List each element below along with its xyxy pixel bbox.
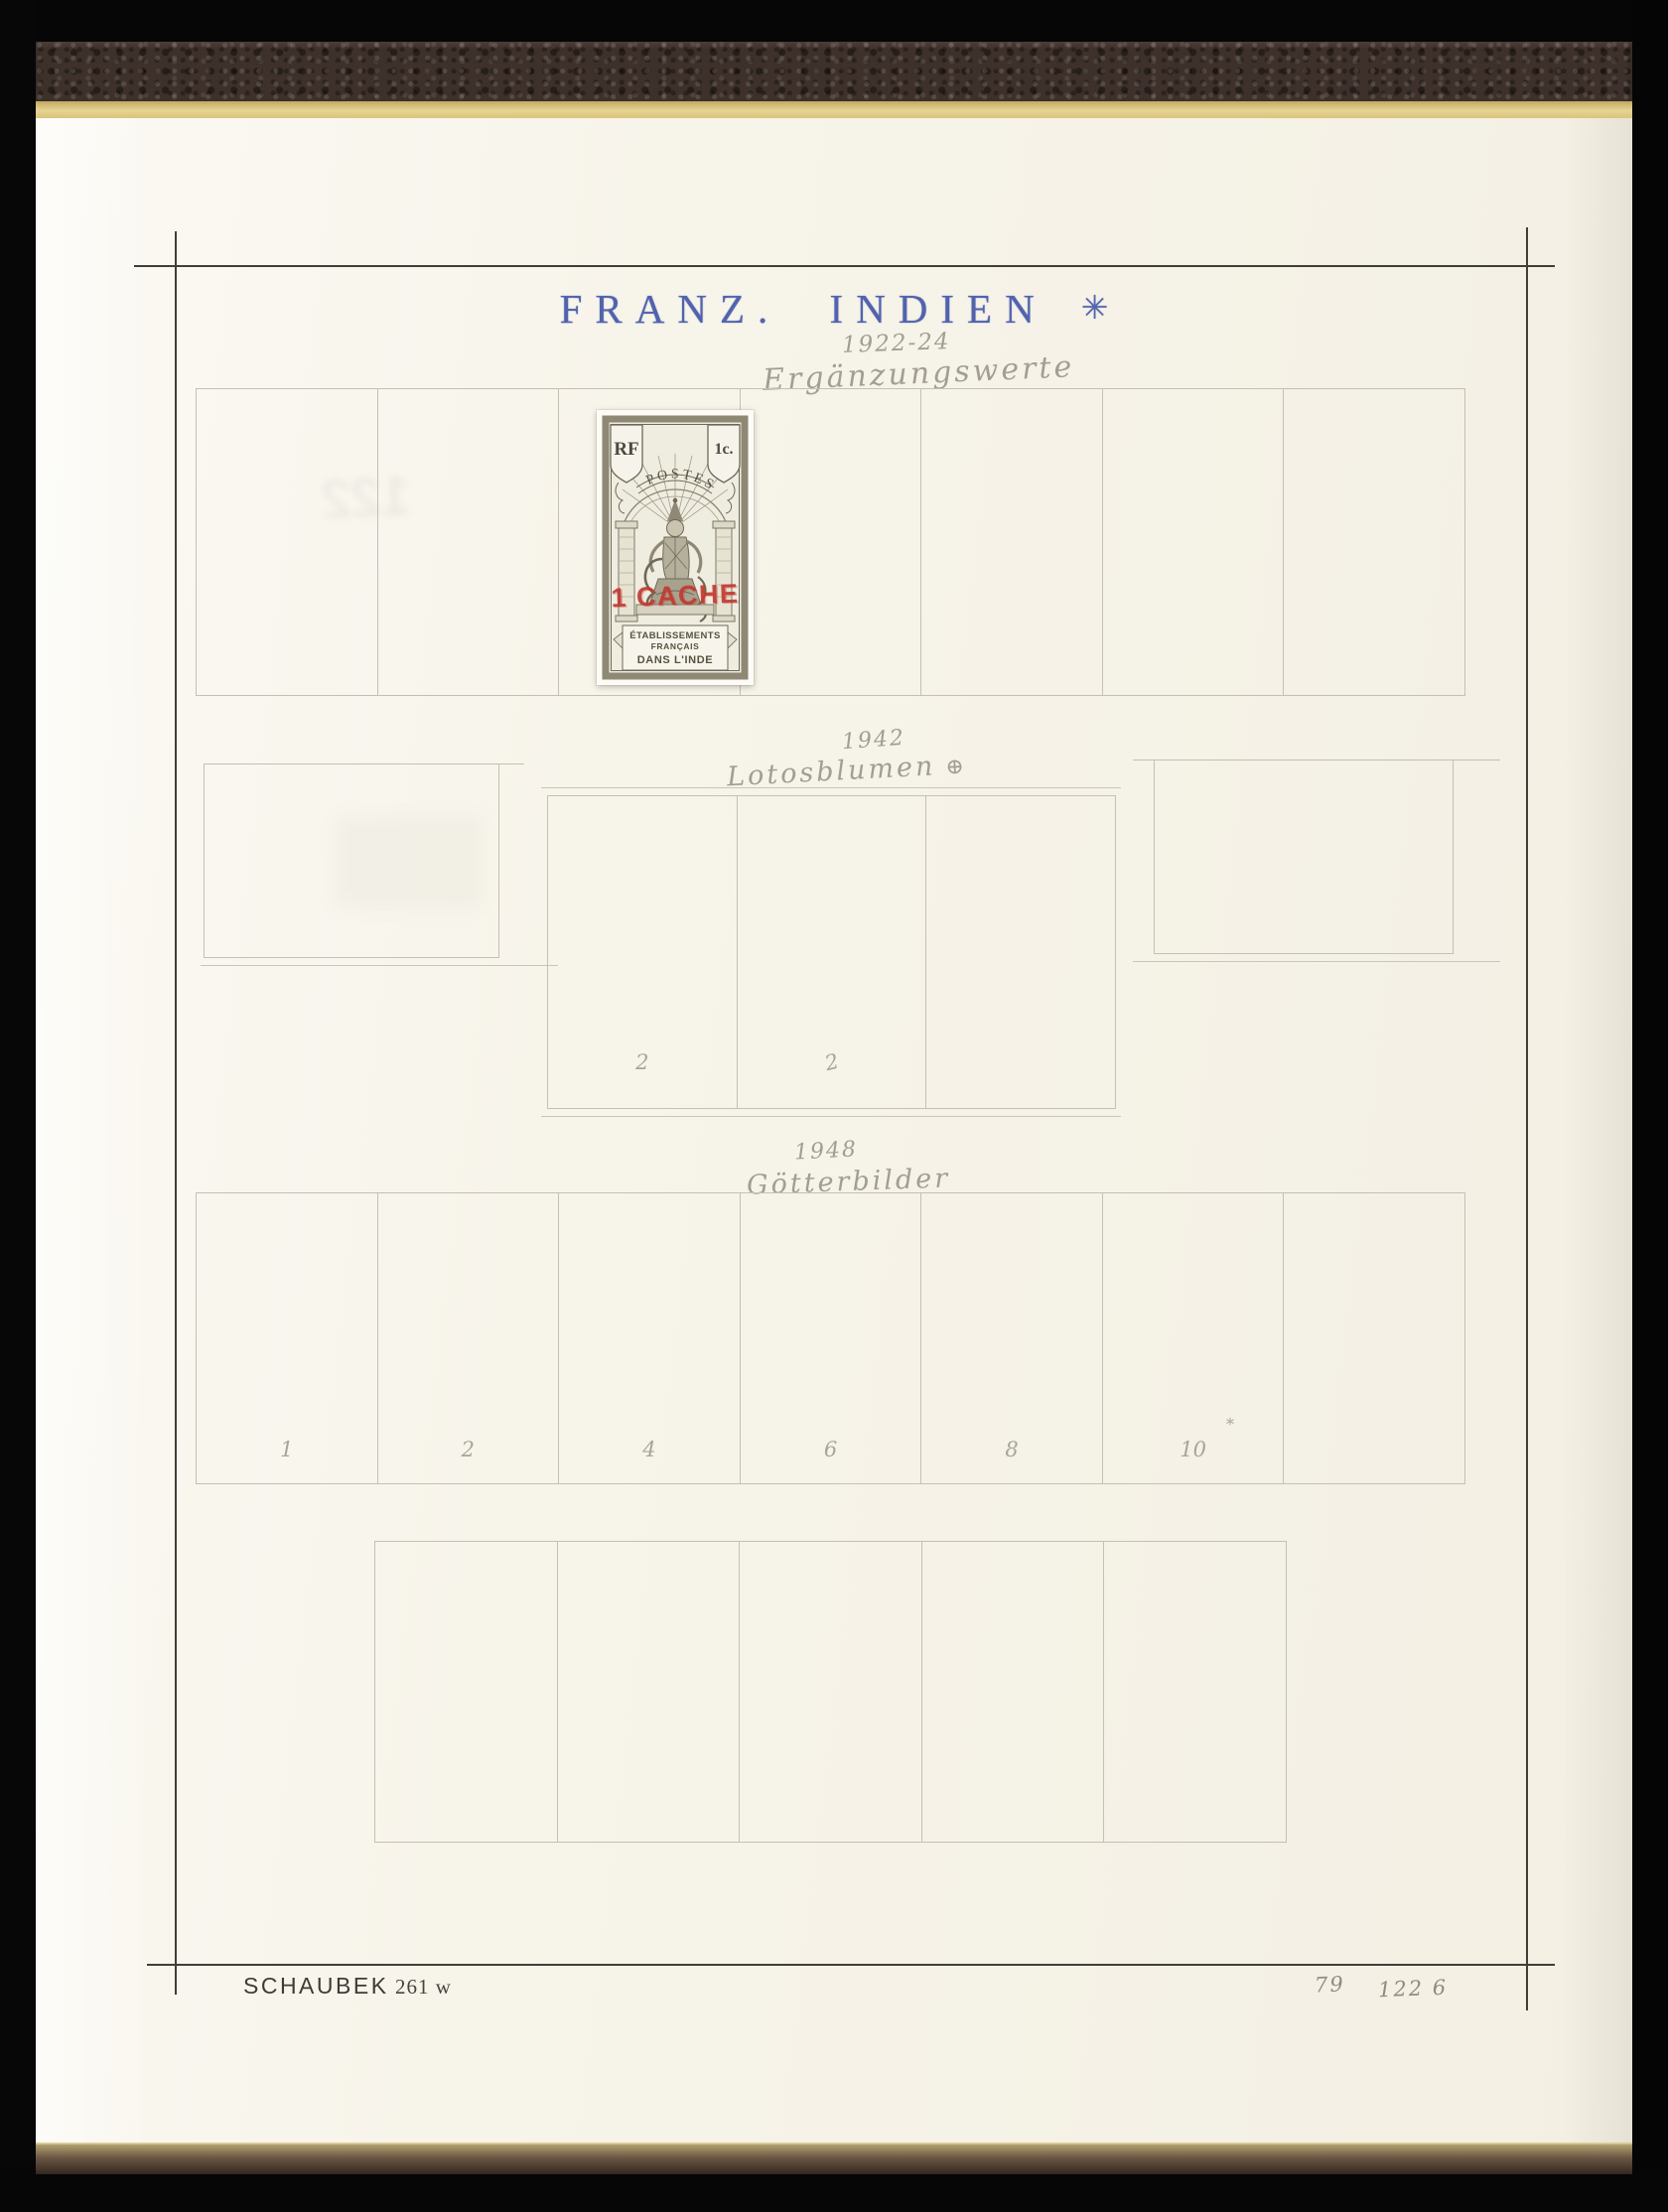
stamp-box [920, 388, 1103, 696]
shield-right-value: 1c. [714, 441, 733, 458]
page-edge-highlight [36, 118, 155, 2144]
stamp-box [1103, 1541, 1287, 1843]
pencil-asterisk-mark: * [1226, 1415, 1234, 1434]
scan-background-bottom [0, 2174, 1668, 2212]
handwritten-watermark-symbol: ⊕ [945, 755, 968, 780]
stamp-box: 10 [1102, 1192, 1285, 1484]
stamp-box: 8 [920, 1192, 1103, 1484]
frame-line-left [175, 231, 177, 1995]
page-title-row: FRANZ. INDIEN ✳ [36, 285, 1632, 333]
stamp-box [374, 1541, 558, 1843]
pencil-number: 1 [197, 1438, 377, 1461]
stamp-box: 2 [377, 1192, 560, 1484]
pencil-number: 2 [548, 1050, 737, 1074]
stamp-overprint: 1 CACHE 1 CACHE [611, 579, 742, 615]
stamp-box [925, 795, 1116, 1109]
stamp-box-wide-left [204, 763, 499, 958]
scanned-album-page: 122 FRANZ. INDIEN ✳ 1922-24 Ergänzungswe… [0, 0, 1668, 2212]
scan-background-left [0, 0, 36, 2212]
shield-left-monogram: RF [614, 439, 638, 460]
stamp-box: 2 [737, 795, 927, 1109]
handwritten-year-s2: 1942 [841, 726, 906, 755]
caption-line-2: FRANÇAIS [651, 641, 700, 651]
album-cover-leather-edge [36, 34, 1632, 111]
stamp-caption-tablet: ÉTABLISSEMENTS FRANÇAIS DANS L'INDE [614, 625, 737, 670]
stamp-french-india-1c-cache: RF 1c. POSTES 1 CACHE 1 CACHE [597, 410, 754, 685]
stamp-box: 4 [558, 1192, 741, 1484]
stamp-box: 6 [740, 1192, 922, 1484]
handwritten-year-s1: 1922-24 [842, 329, 951, 358]
pencil-number: 8 [921, 1438, 1102, 1461]
plate-number: 261 w [395, 1975, 452, 2000]
pencil-number: 10 [1103, 1438, 1284, 1461]
stamp-box [1283, 388, 1465, 696]
stamp-box [740, 388, 922, 696]
stamp-box: 2 [547, 795, 738, 1109]
stamp-box-row-1 [196, 388, 1464, 696]
title-asterisk-mark: ✳ [1081, 288, 1109, 327]
scan-background-top [0, 0, 1668, 42]
stamp-box-wide-right [1154, 760, 1454, 954]
stamp-box [1283, 1192, 1465, 1484]
page-bottom-edge [36, 2143, 1632, 2176]
handwritten-page-number-left: 79 [1314, 1972, 1345, 1998]
scan-background-right [1632, 0, 1668, 2212]
handwritten-page-number-right: 122 6 [1378, 1976, 1449, 2002]
frame-line-bottom [147, 1964, 1555, 1966]
page-stack-edge [36, 101, 1632, 118]
pencil-number: 2 [738, 1028, 926, 1096]
stamp-box-row-2: 2 2 [547, 795, 1115, 1109]
frame-line-top [134, 265, 1555, 267]
pencil-number: 2 [378, 1438, 559, 1461]
publisher-imprint: SCHAUBEK [243, 1973, 389, 2000]
album-sheet: 122 FRANZ. INDIEN ✳ 1922-24 Ergänzungswe… [36, 118, 1632, 2144]
stamp-box [557, 1541, 741, 1843]
stamp-box-row-3: 1 2 4 6 8 10 [196, 1192, 1464, 1484]
stamp-box [377, 388, 560, 696]
svg-text:1 CACHE: 1 CACHE [611, 579, 740, 613]
page-curl-shadow [1563, 118, 1632, 2144]
pencil-number: 6 [741, 1438, 921, 1461]
handwritten-label-s2: Lotosblumen⊕ [726, 750, 967, 793]
stamp-box-row-4 [374, 1541, 1286, 1843]
frame-line-right [1526, 227, 1528, 2010]
handwritten-label-s2-text: Lotosblumen [726, 751, 936, 792]
caption-line-3: DANS L'INDE [637, 654, 713, 666]
stamp-box [196, 388, 378, 696]
stamp-box [739, 1541, 922, 1843]
pencil-number: 4 [559, 1438, 740, 1461]
page-title: FRANZ. INDIEN [560, 285, 1047, 333]
caption-line-1: ÉTABLISSEMENTS [629, 630, 720, 641]
stamp-box [1102, 388, 1285, 696]
stamp-box: 1 [196, 1192, 378, 1484]
stamp-box [921, 1541, 1105, 1843]
handwritten-year-s3: 1948 [793, 1137, 858, 1165]
